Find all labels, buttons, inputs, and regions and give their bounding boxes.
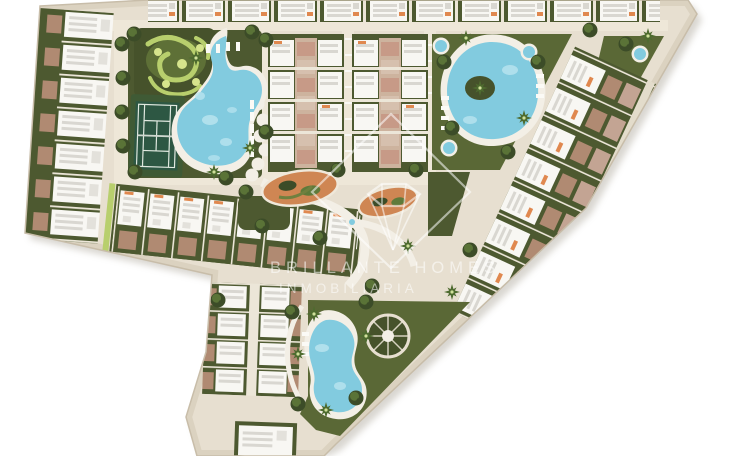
site-plan-page: BRILLANTE HOMES INMOBILIARIA bbox=[0, 0, 756, 456]
sun-loungers bbox=[302, 332, 309, 356]
townhouse-column-west bbox=[20, 8, 114, 244]
watermark-line2: INMOBILIARIA bbox=[279, 281, 418, 296]
watermark-line1: BRILLANTE HOMES bbox=[270, 259, 500, 277]
apartment-block-a bbox=[268, 34, 344, 172]
masterplan-rendering: BRILLANTE HOMES INMOBILIARIA bbox=[0, 0, 756, 456]
apartment-block-b bbox=[352, 34, 428, 172]
south-pool-garden bbox=[288, 300, 471, 436]
townhouse-row-top bbox=[148, 0, 660, 22]
central-park bbox=[128, 28, 272, 182]
